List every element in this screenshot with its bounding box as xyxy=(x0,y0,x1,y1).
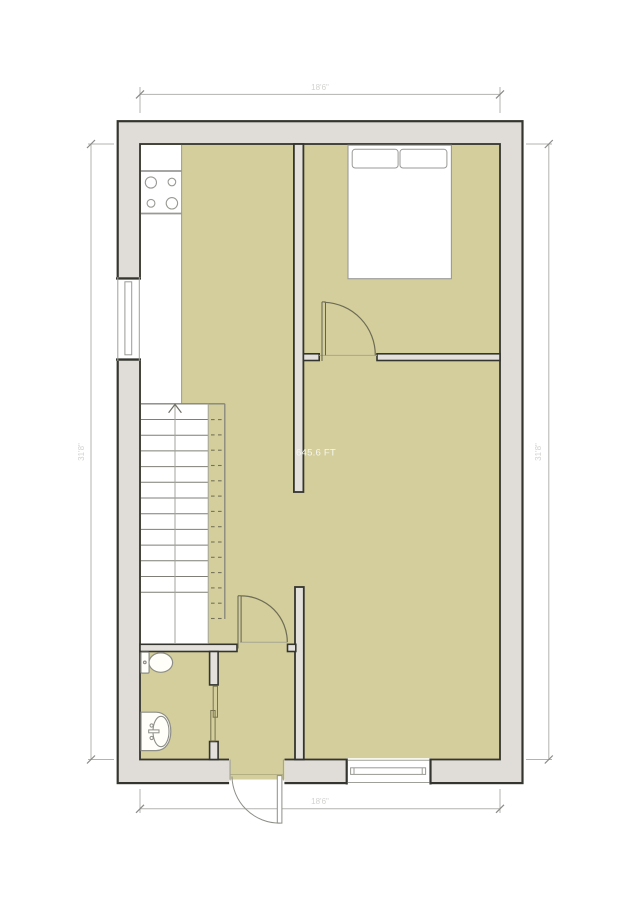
svg-text:18'6": 18'6" xyxy=(311,797,329,806)
svg-text:31'8": 31'8" xyxy=(534,443,543,461)
svg-text:31'8": 31'8" xyxy=(77,443,86,461)
svg-text:645.6 FT: 645.6 FT xyxy=(296,447,336,458)
svg-text:18'6": 18'6" xyxy=(311,83,329,92)
